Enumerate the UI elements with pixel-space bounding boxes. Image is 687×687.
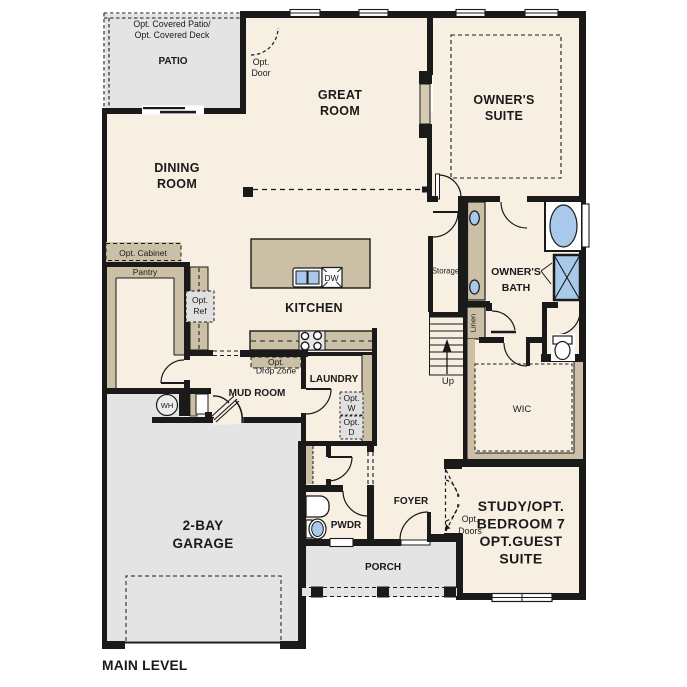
- svg-text:GREAT: GREAT: [318, 88, 362, 102]
- svg-text:Ref: Ref: [193, 306, 207, 316]
- svg-text:FOYER: FOYER: [394, 496, 429, 507]
- svg-text:DW: DW: [324, 273, 339, 283]
- svg-text:STUDY/OPT.: STUDY/OPT.: [478, 498, 564, 514]
- svg-text:SUITE: SUITE: [499, 551, 542, 567]
- svg-text:Drop Zone: Drop Zone: [256, 366, 296, 376]
- svg-text:Storage: Storage: [432, 267, 459, 276]
- svg-text:BEDROOM 7: BEDROOM 7: [477, 516, 565, 532]
- svg-text:ROOM: ROOM: [320, 104, 360, 118]
- svg-text:BATH: BATH: [502, 282, 530, 294]
- svg-text:Door: Door: [251, 68, 270, 78]
- svg-text:DINING: DINING: [154, 161, 200, 175]
- svg-text:OPT.GUEST: OPT.GUEST: [480, 533, 563, 549]
- svg-text:Pantry: Pantry: [133, 267, 158, 277]
- svg-text:ROOM: ROOM: [157, 177, 197, 191]
- svg-text:WH: WH: [161, 401, 174, 410]
- svg-text:Opt.: Opt.: [343, 393, 359, 403]
- svg-text:Opt. Covered Deck: Opt. Covered Deck: [135, 30, 210, 40]
- svg-text:OWNER'S: OWNER'S: [491, 266, 541, 278]
- svg-text:Linen: Linen: [469, 314, 478, 332]
- svg-text:WIC: WIC: [513, 404, 532, 415]
- svg-text:OWNER'S: OWNER'S: [473, 93, 534, 107]
- svg-text:Opt.: Opt.: [253, 57, 270, 67]
- svg-text:KITCHEN: KITCHEN: [285, 301, 343, 315]
- svg-text:Opt. Cabinet: Opt. Cabinet: [119, 248, 167, 258]
- svg-text:PWDR: PWDR: [331, 520, 362, 531]
- svg-text:Opt.: Opt.: [192, 295, 208, 305]
- svg-text:Opt. Covered Patio/: Opt. Covered Patio/: [133, 19, 211, 29]
- svg-text:GARAGE: GARAGE: [172, 536, 233, 551]
- svg-text:MUD ROOM: MUD ROOM: [229, 388, 286, 399]
- svg-text:PATIO: PATIO: [158, 56, 187, 67]
- svg-text:SUITE: SUITE: [485, 109, 523, 123]
- svg-text:2-BAY: 2-BAY: [183, 518, 224, 533]
- svg-text:Up: Up: [442, 376, 454, 387]
- svg-text:D: D: [348, 427, 354, 437]
- svg-text:LAUNDRY: LAUNDRY: [310, 374, 359, 385]
- svg-text:MAIN LEVEL: MAIN LEVEL: [102, 658, 188, 673]
- svg-text:Opt.: Opt.: [343, 417, 359, 427]
- svg-text:PORCH: PORCH: [365, 562, 401, 573]
- svg-text:W: W: [347, 403, 355, 413]
